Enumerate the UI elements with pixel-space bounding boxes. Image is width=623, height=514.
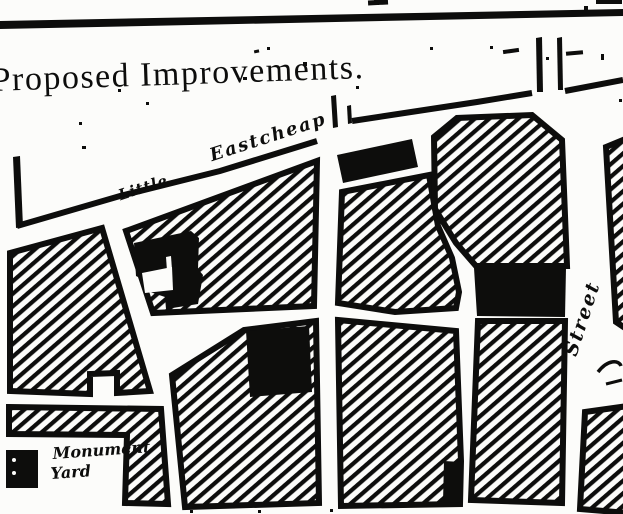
city-block-west	[10, 228, 150, 394]
building-on-eastcheap	[337, 139, 418, 183]
street-corner-west	[13, 156, 23, 228]
legend-monument-yard-label-line2: Yard	[50, 461, 91, 483]
city-block-east-north	[434, 115, 567, 266]
legend-monument-yard-swatch	[6, 450, 38, 488]
city-block-far-east-south	[580, 406, 623, 513]
pen-flourish	[598, 362, 622, 384]
city-block-mid-south	[338, 320, 461, 506]
map-scan-proposed-improvements: Proposed Improvements. Little Eastcheap …	[0, 0, 623, 514]
city-block-east-south	[471, 321, 565, 503]
building-church-cross	[134, 231, 203, 309]
building-mid-south-corner	[443, 461, 461, 503]
building-east-band	[474, 268, 566, 317]
street-edge-eastcheap-east	[565, 80, 623, 91]
page-rule	[0, 0, 623, 29]
city-block-far-east-north	[606, 138, 623, 330]
building-center-south	[246, 326, 312, 397]
